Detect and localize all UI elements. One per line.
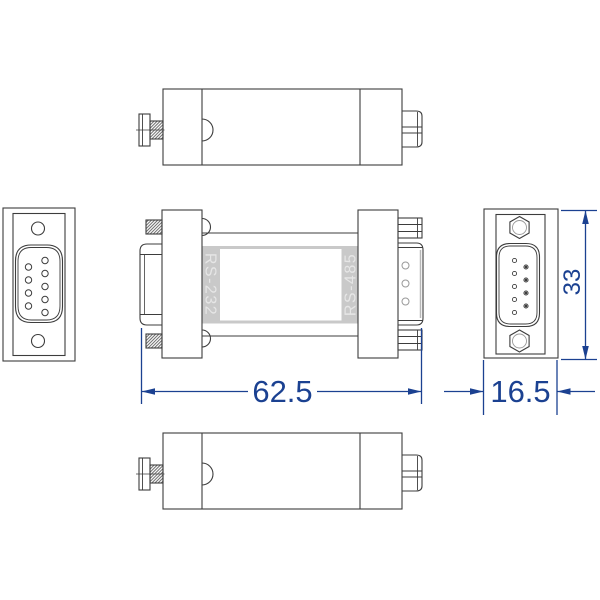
notch-bottom <box>202 330 211 347</box>
top-view <box>136 89 422 165</box>
jack-screw-thread-top <box>146 220 162 234</box>
pin-glimpse-holes <box>402 262 409 305</box>
male-db9-shell <box>398 243 423 325</box>
arrow-right <box>408 388 422 395</box>
adapter-orthographic-drawing: RS-232 RS-485 <box>0 0 600 600</box>
technical-drawing-canvas: RS-232 RS-485 <box>0 0 600 600</box>
height-dimension: 33 <box>559 211 597 360</box>
male-pins <box>512 258 528 314</box>
arrow-up <box>582 211 589 225</box>
label-window <box>220 249 342 321</box>
socket-holes <box>25 257 48 315</box>
height-dimension-value: 33 <box>559 269 586 296</box>
width-dimension-value: 62.5 <box>252 374 312 409</box>
d-shell-outer <box>497 244 540 327</box>
right-end-cap <box>358 210 398 358</box>
db9-shell-profile <box>402 111 422 147</box>
hex-standoff-bottom <box>398 330 422 350</box>
rs232-label: RS-232 <box>202 253 219 316</box>
arrow-down <box>582 346 589 360</box>
left-end-cap <box>162 210 202 358</box>
screw-hole-bottom <box>32 335 45 348</box>
jack-screw-thread-bottom <box>146 334 162 348</box>
hex-nut-bottom <box>510 330 529 352</box>
width-dimension: 62.5 <box>142 328 422 409</box>
bottom-view-shape <box>136 433 422 509</box>
female-db9-shell <box>140 244 162 325</box>
body-outline <box>163 89 402 165</box>
bottom-view <box>136 433 422 509</box>
left-side-view-female-db9 <box>3 208 75 361</box>
front-view: RS-232 RS-485 <box>140 210 423 358</box>
right-side-view-male-db9 <box>484 209 558 358</box>
flange-outline <box>3 208 75 361</box>
rs485-label: RS-485 <box>343 253 360 316</box>
d-shell-inner <box>499 246 537 324</box>
flange-outline <box>484 209 558 358</box>
side-width-dimension: 16.5 <box>444 360 595 415</box>
d-shell-inner <box>18 248 60 321</box>
d-shell-outer <box>16 245 63 323</box>
side-width-dimension-value: 16.5 <box>490 374 550 409</box>
screw-hole-top <box>32 222 45 235</box>
hex-standoff-top <box>398 218 422 238</box>
hex-nut-top <box>510 217 529 239</box>
jack-screw <box>136 114 165 146</box>
arrow-left <box>470 388 484 395</box>
arrow-left <box>142 388 156 395</box>
arrow-right <box>557 388 571 395</box>
notch-semicircle <box>202 119 213 141</box>
connector-face <box>496 215 545 355</box>
